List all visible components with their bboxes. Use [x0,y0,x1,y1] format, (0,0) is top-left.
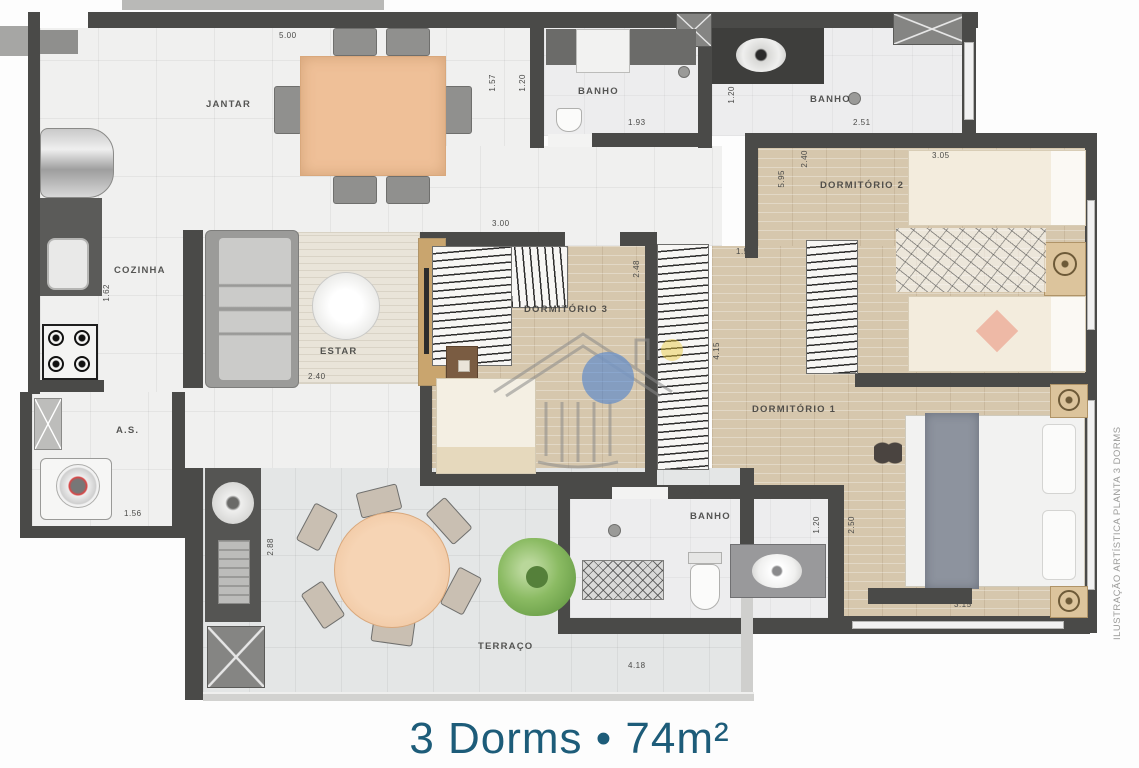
door-banho1 [548,134,592,147]
label-dormitorio-3: DORMITÓRIO 3 [524,304,608,315]
dim-dorm2-left: 2.40 [800,150,809,168]
terraco-plant-core [526,566,548,588]
label-banho-1: BANHO [578,86,619,97]
dining-table [300,56,446,176]
plan-caption: 3 Dorms • 74m² [0,714,1139,764]
dim-banho3-top: 2.45 [686,488,704,497]
coffee-table [312,272,380,340]
dim-dorm2-outer: 5.95 [777,170,786,188]
washer-door [56,464,100,508]
wall-left [28,12,40,394]
wall-hall-dorm2 [745,148,758,258]
banho1-toilet [556,108,582,132]
stove-burner-1 [48,330,64,346]
label-area-servico: A.S. [116,425,139,436]
label-banho-3: BANHO [690,511,731,522]
dim-dorm1-left: 2.50 [847,516,856,534]
dim-banho1-left-a: 1.57 [488,74,497,92]
dorm1-nightstand-2-fan [1058,590,1080,612]
shaft-top-right [893,13,971,45]
dim-banho1-bottom: 1.93 [628,118,646,127]
kitchen-sink [47,238,89,290]
gourmet-grill [218,540,250,604]
dim-estar-bottom: 2.40 [308,372,326,381]
dim-cozinha-left: 1.62 [102,284,111,302]
dining-chair-5 [274,86,302,134]
wall-dorm2-top [745,133,1095,148]
wall-banho3-right [828,487,844,633]
banho2-basin [736,38,786,72]
wall-kitchen-stub [28,380,104,392]
shaft-as [34,398,62,450]
dim-terraco-bottom: 4.18 [628,661,646,670]
banho3-shower [582,560,664,600]
wall-estar-back [183,230,203,388]
rail-terraco-bottom [203,692,754,701]
dorm3-desk-chair [458,360,470,372]
label-dormitorio-2: DORMITÓRIO 2 [820,180,904,191]
window-dorm1 [1087,400,1095,590]
wall-as-left [20,392,32,532]
banho1-basin-box [576,29,630,73]
dim-banho3-right: 1.20 [812,516,821,534]
window-dorm2 [1087,200,1095,330]
floor-hall [422,146,722,246]
tv-screen [424,268,429,354]
dim-corridor-right: 4.15 [712,342,721,360]
gourmet-sink [212,482,254,524]
door-banho3 [612,487,668,499]
wall-top [88,12,978,28]
dorm1-pillow-2 [1042,510,1076,580]
sliding-door-dorm1 [852,621,1064,629]
banho3-shower-head [608,524,621,537]
label-terraco: TERRAÇO [478,641,533,652]
window-banho2 [964,42,974,120]
dim-corridor-top: 1.50 [736,247,754,256]
dim-banho2-bottom: 2.51 [853,118,871,127]
dorm2-bed-a [908,150,1086,226]
dim-gourmet-right: 2.88 [266,538,275,556]
stove-burner-2 [74,330,90,346]
dorm2-nightstand-fan [1053,252,1077,276]
dim-dorm3-top: 3.00 [492,219,510,228]
wall-as-right [172,392,185,538]
dim-banho1-left-b: 1.20 [518,74,527,92]
sofa-cushions [219,238,291,380]
dorm1-pillow-1 [1042,424,1076,494]
dim-dorm3-right: 2.48 [632,260,641,278]
terraco-table [334,512,450,628]
side-note: ILUSTRAÇÃO ARTÍSTICA PLANTA 3 DORMS [1112,410,1123,640]
dorm2-rug [896,228,1046,292]
dining-chair-2 [386,28,430,56]
label-estar: ESTAR [320,346,358,357]
watermark-logo [486,316,686,476]
wall-banho1-bottom [592,133,712,147]
label-jantar: JANTAR [206,99,251,110]
dorm1-nightstand-1-fan [1058,389,1080,411]
dim-jantar-top: 5.00 [279,31,297,40]
dim-banho2-left: 1.20 [727,86,736,104]
label-cozinha: COZINHA [114,265,166,276]
dining-chair-6 [444,86,472,134]
wall-banho1-left [530,28,544,148]
dorm1-slippers [874,440,902,466]
wall-banho3-bottom [558,618,848,634]
exterior-unit-1 [0,26,28,56]
banho3-toilet [690,564,720,610]
shaft-terraco [207,626,265,688]
dim-dorm1-bed: 3.15 [954,600,972,609]
banho3-toilet-tank [688,552,722,564]
banho3-basin [752,554,802,588]
dim-as-bottom: 1.56 [124,509,142,518]
wall-terraco-left [185,468,203,700]
stove-burner-4 [74,356,90,372]
dining-chair-4 [386,176,430,204]
closet-dorm2 [806,240,858,374]
banho1-shower-head [678,66,690,78]
label-dormitorio-1: DORMITÓRIO 1 [752,404,836,415]
fridge [40,128,114,198]
dorm1-bed-runner [925,413,979,589]
label-banho-2: BANHO [810,94,851,105]
dining-chair-3 [333,176,377,204]
stove-burner-3 [48,356,64,372]
floor-plan-image: JANTAR COZINHA ESTAR BANHO BANHO DORMITÓ… [0,0,1139,768]
dim-dorm2-top: 3.05 [932,151,950,160]
exterior-slab [122,0,384,10]
dining-chair-1 [333,28,377,56]
wall-as-bottom [20,526,182,538]
